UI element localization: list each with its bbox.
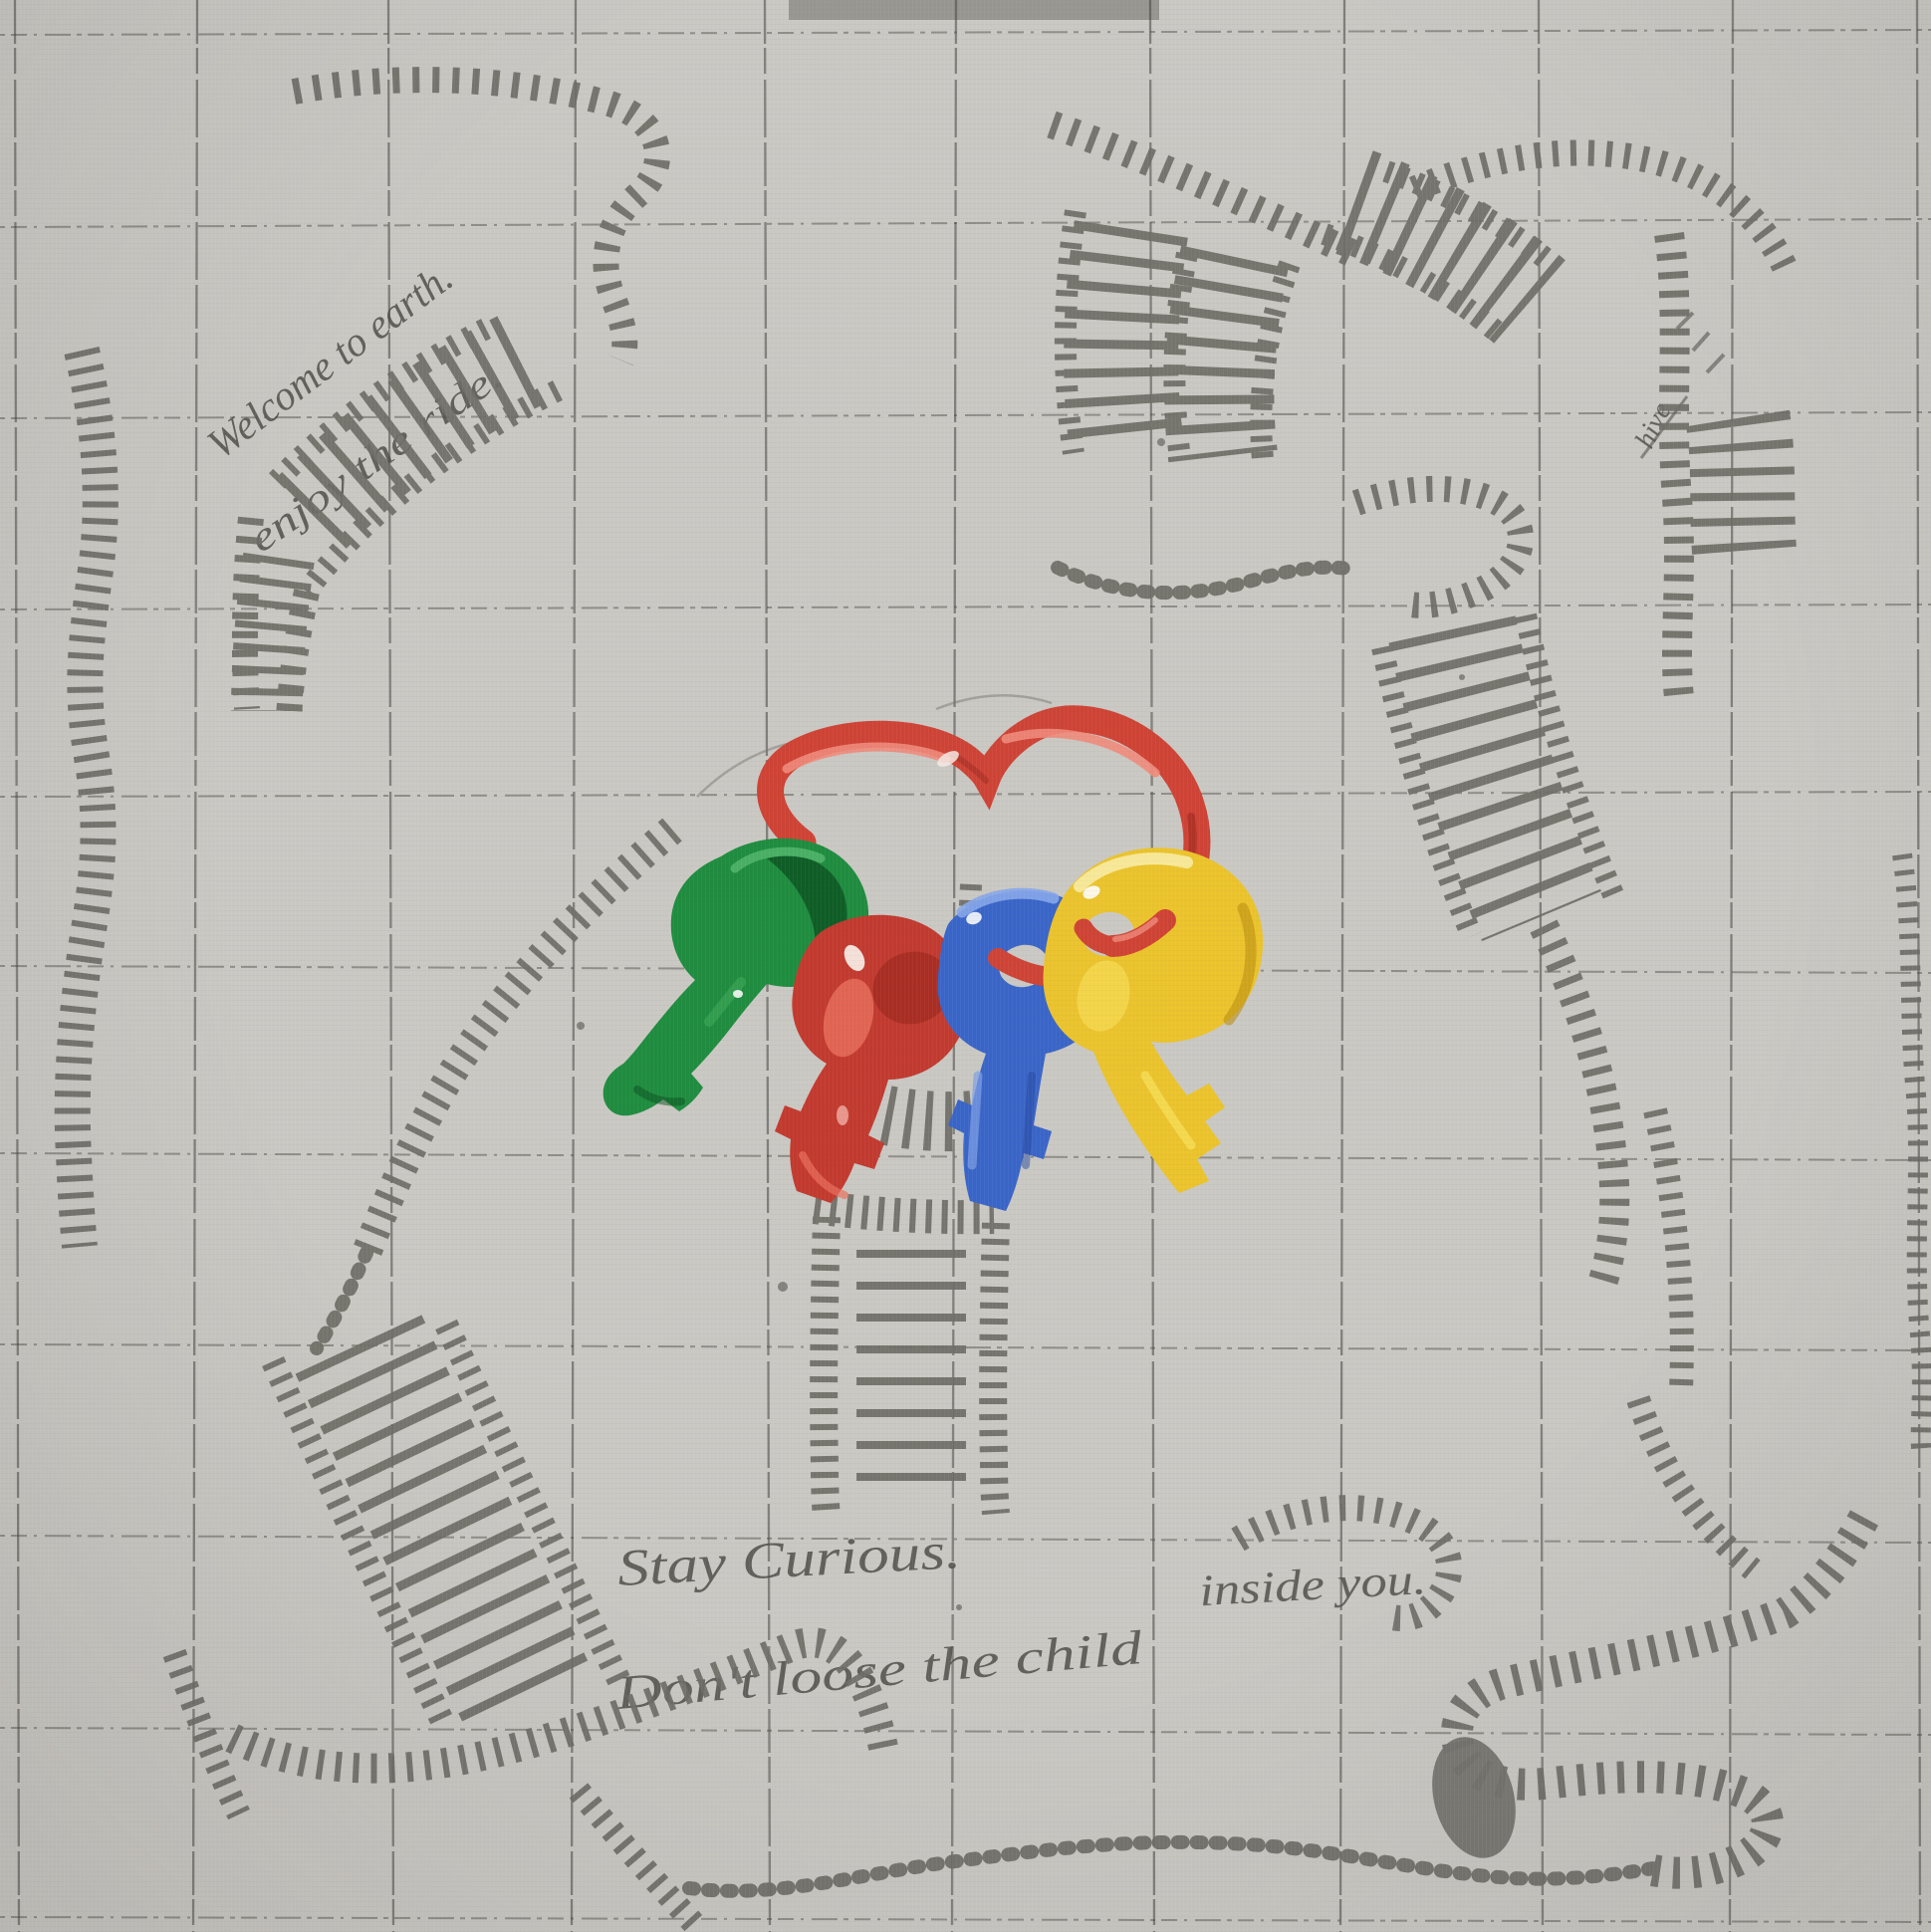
top-edge-shadow <box>789 0 1159 20</box>
painting-canvas: Welcome to earth. enjoy the ride. Stay C… <box>0 0 1931 1932</box>
painting: Welcome to earth. enjoy the ride. Stay C… <box>0 0 1931 1932</box>
